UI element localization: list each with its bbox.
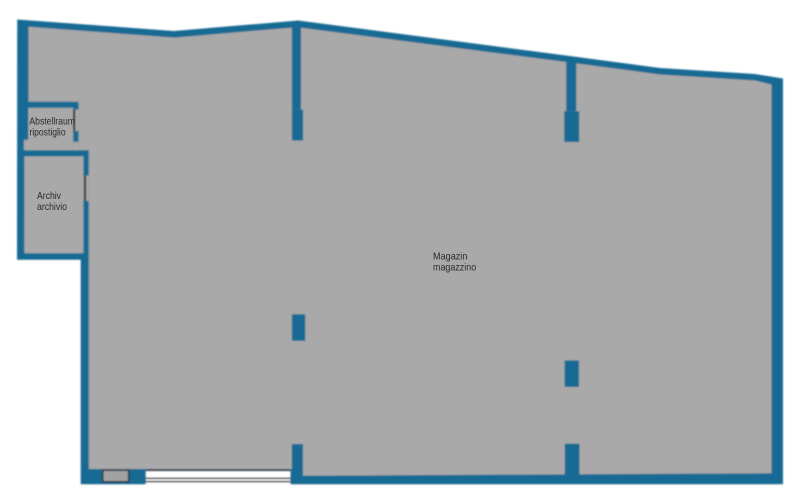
svg-text:ripostiglio: ripostiglio	[29, 126, 65, 138]
svg-text:Magazin: Magazin	[433, 250, 468, 262]
svg-text:magazzino: magazzino	[433, 262, 476, 274]
svg-text:archivio: archivio	[37, 201, 67, 213]
